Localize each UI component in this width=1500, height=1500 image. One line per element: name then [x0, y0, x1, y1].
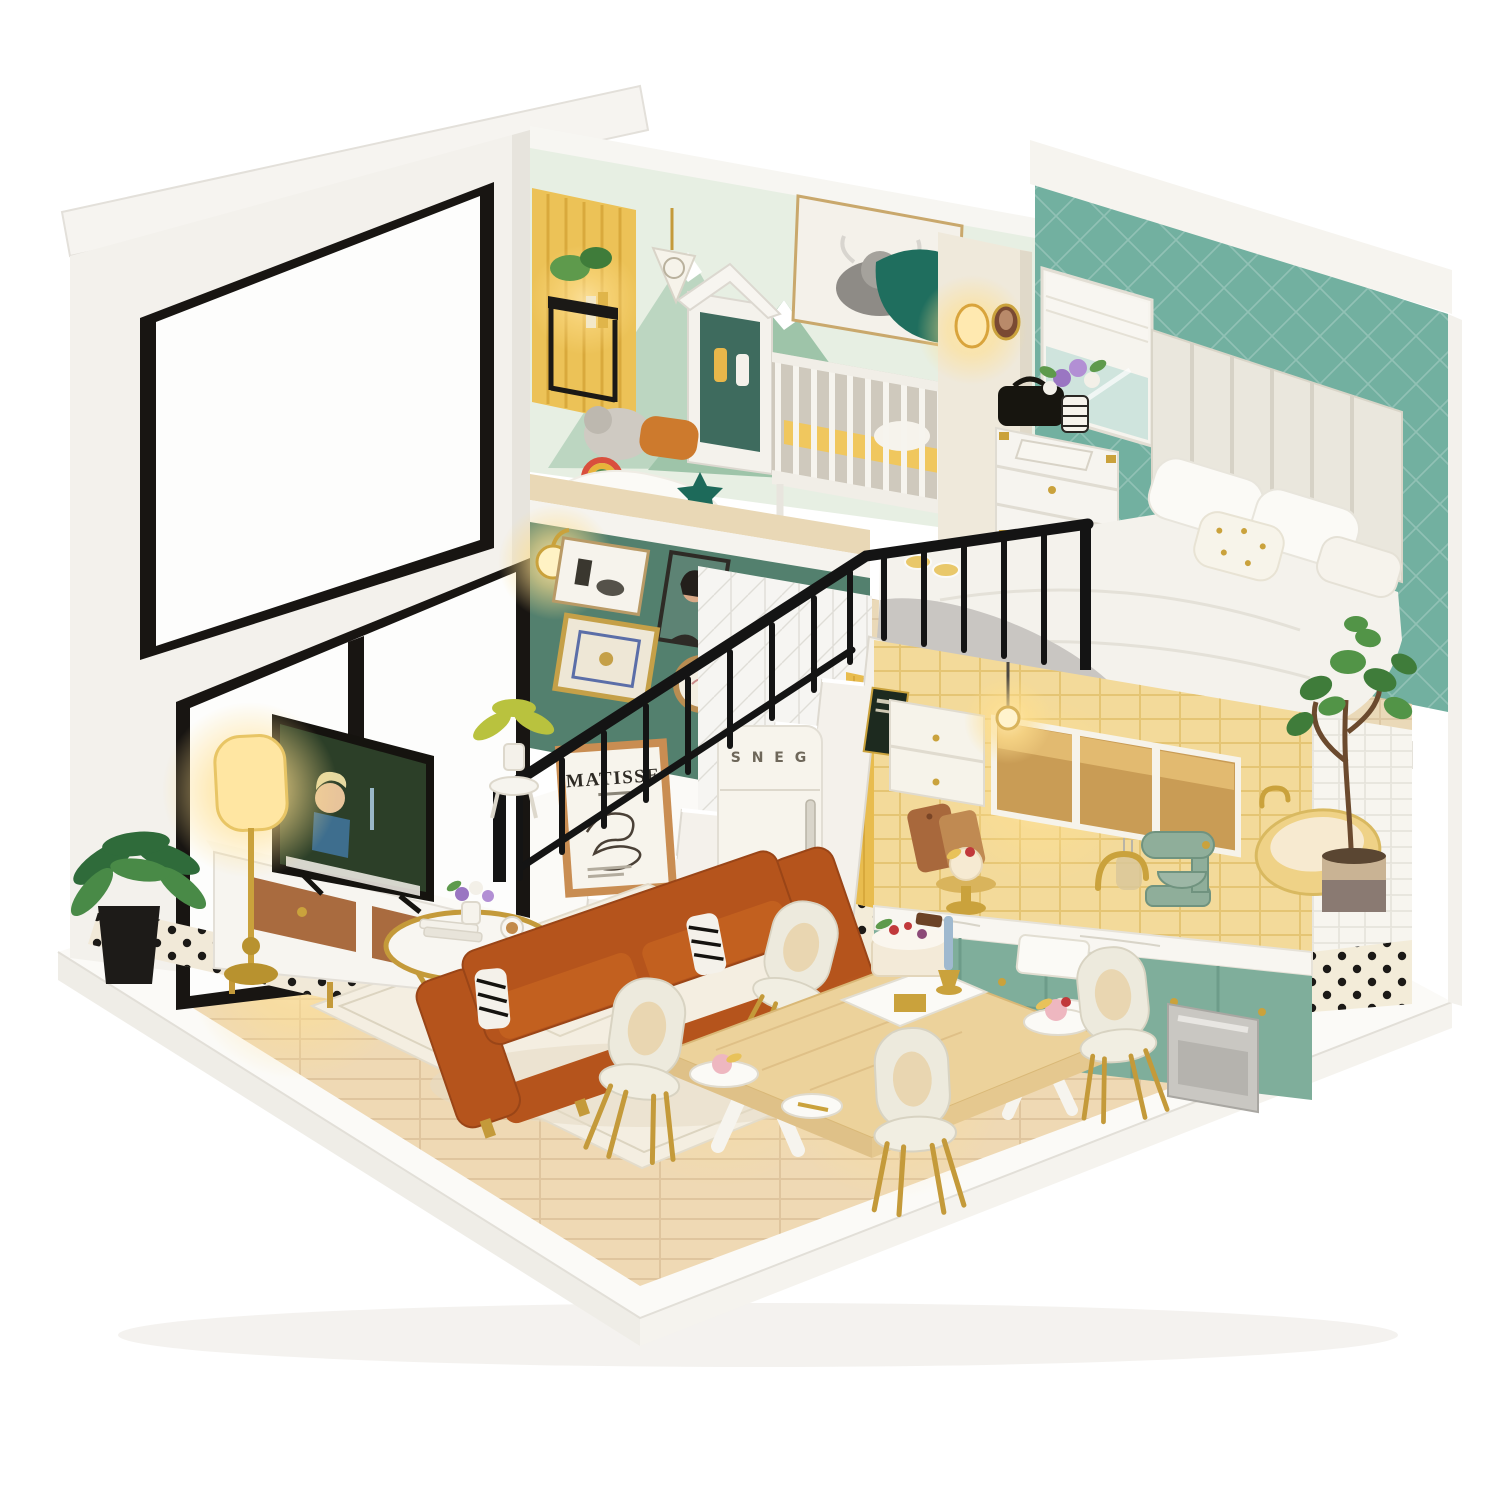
blue-candle: [944, 916, 953, 970]
right-wall-edge: [1448, 314, 1462, 1006]
slippers: [905, 555, 931, 569]
lamp-shade: [214, 734, 289, 832]
frame-still-life: [554, 538, 649, 615]
ground-shadow: [118, 1303, 1398, 1367]
fridge-logo: S N E G: [731, 750, 809, 766]
frame-gold: [555, 615, 657, 702]
dollhouse-illustration: MATISSE S N E G: [0, 0, 1500, 1500]
striped-pillow: [474, 968, 511, 1031]
dishwasher: [1168, 1004, 1258, 1112]
black-planter: [98, 906, 160, 984]
wall-sconce: [956, 305, 988, 347]
matisse-poster: MATISSE: [555, 738, 677, 897]
newel-post: [1080, 526, 1091, 670]
lamp-base: [224, 963, 278, 985]
hanging-clothes: [714, 348, 727, 382]
product-photo: MATISSE S N E G: [0, 0, 1500, 1500]
wardrobe-interior: [700, 312, 760, 452]
pendant-bulb: [997, 707, 1019, 729]
